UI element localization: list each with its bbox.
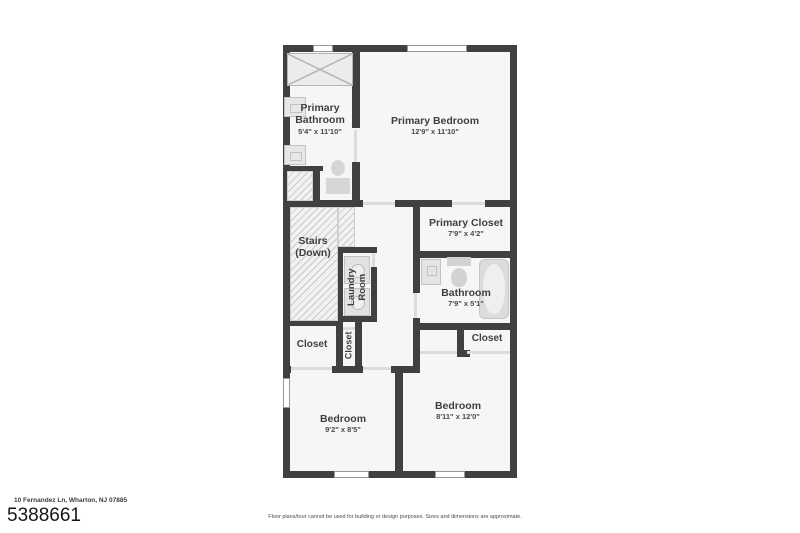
toilet-icon: [447, 257, 471, 289]
room-label-bathroom: Bathroom 7'9" x 5'1": [423, 287, 509, 309]
room-name: Laundry Room: [346, 264, 368, 310]
door-opening: [372, 253, 375, 267]
wall-chase-right: [313, 166, 320, 207]
room-label-laundry: Laundry Room: [346, 264, 368, 310]
room-label-closet-middle: Closet: [344, 325, 355, 365]
door-opening: [354, 130, 357, 162]
room-label-stairs: Stairs (Down): [285, 235, 341, 260]
window-icon: [283, 378, 290, 408]
door-opening: [363, 202, 395, 205]
toilet-icon: [326, 160, 350, 198]
wall-mid-b: [395, 200, 452, 207]
room-name: Closet: [344, 325, 355, 365]
floor-plan-page: Primary Bathroom 5'4" x 11'10" Primary B…: [0, 0, 800, 533]
shower-icon: [288, 54, 352, 85]
room-name: Bedroom: [303, 413, 383, 425]
wall-bath-bed: [352, 52, 360, 128]
door-opening: [467, 351, 510, 354]
door-opening: [414, 293, 417, 318]
door-opening: [363, 367, 391, 370]
room-name: Primary Bedroom: [371, 115, 499, 127]
room-label-primary-bedroom: Primary Bedroom 12'9" x 11'10": [371, 115, 499, 137]
wall-laundry-left: [338, 253, 343, 322]
disclaimer: Floor plans/tour cannot be used for buil…: [240, 514, 550, 520]
wall-mid-c: [485, 200, 510, 207]
room-dims: 12'9" x 11'10": [371, 128, 499, 137]
room-label-primary-bathroom: Primary Bathroom 5'4" x 11'10": [287, 102, 353, 137]
window-icon: [435, 471, 465, 478]
vanity-sink-icon: [284, 145, 306, 165]
chase-hatch: [287, 171, 313, 201]
wall-bedroom-top-b: [332, 366, 363, 373]
room-dims: 9'2" x 8'5": [303, 426, 383, 435]
listing-id: 5388661: [7, 505, 81, 527]
wall-bedroom-top-a: [283, 366, 291, 373]
sink-icon: [421, 259, 441, 285]
wall-bath-bottom: [413, 323, 510, 330]
room-name: Stairs (Down): [285, 235, 341, 260]
room-dims: 7'9" x 5'1": [423, 300, 509, 309]
room-label-bedroom-left: Bedroom 9'2" x 8'5": [303, 413, 383, 435]
room-dims: 8'11" x 12'0": [418, 413, 498, 422]
room-name: Closet: [462, 333, 512, 345]
door-opening: [420, 351, 457, 354]
wall-mid-a: [283, 200, 363, 207]
wall-hall-right-a: [413, 200, 420, 293]
room-label-primary-closet: Primary Closet 7'9" x 4'2": [423, 217, 509, 239]
room-label-closet-left: Closet: [287, 339, 337, 351]
wall-laundry-right: [371, 267, 377, 322]
room-name: Bathroom: [423, 287, 509, 299]
window-icon: [334, 471, 369, 478]
room-name: Bedroom: [418, 400, 498, 412]
floor-plan: Primary Bathroom 5'4" x 11'10" Primary B…: [283, 45, 517, 478]
room-name: Primary Bathroom: [287, 102, 353, 127]
wall-between-bedrooms: [395, 366, 403, 478]
window-icon: [313, 45, 333, 52]
room-name: Primary Closet: [423, 217, 509, 229]
door-opening: [452, 202, 485, 205]
window-icon: [407, 45, 467, 52]
wall-exterior-right: [510, 45, 517, 478]
room-dims: 7'9" x 4'2": [423, 230, 509, 239]
door-opening: [291, 367, 332, 370]
property-address: 10 Fernandez Ln, Wharton, NJ 07885: [14, 497, 127, 504]
room-dims: 5'4" x 11'10": [287, 128, 353, 137]
room-label-closet-right: Closet: [462, 333, 512, 345]
room-name: Closet: [287, 339, 337, 351]
stairs-hatch: [290, 207, 338, 321]
room-label-bedroom-right: Bedroom 8'11" x 12'0": [418, 400, 498, 422]
